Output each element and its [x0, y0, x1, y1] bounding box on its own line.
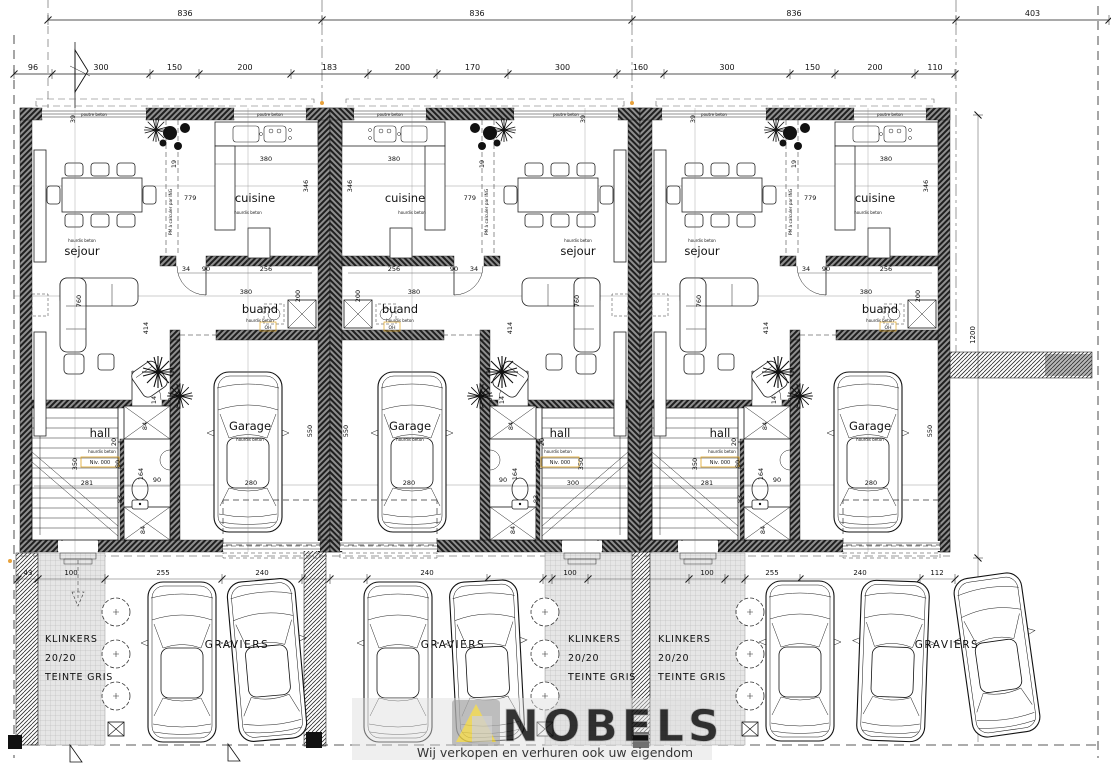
shrub — [736, 598, 764, 626]
dim-label: 80 — [734, 460, 742, 468]
dim-label: 414 — [506, 322, 514, 334]
dim-label: 550 — [306, 425, 314, 437]
dim-label: 84 — [141, 422, 149, 430]
dim-label: 84 — [509, 526, 517, 534]
graviers-label: GRAVIERS — [421, 639, 485, 651]
dim-label: 280 — [403, 479, 415, 487]
klinkers-label: KLINKERS — [568, 634, 621, 645]
dim-label: 19 — [170, 160, 178, 168]
slab-note: hourdis beton — [866, 318, 894, 323]
room-label-sejour: sejour — [560, 244, 596, 258]
slab-note: hourdis beton — [68, 238, 96, 243]
level-label: Niv. 000 — [550, 460, 570, 466]
floor-plan-drawing: 8368368364039630015020018320017030016030… — [0, 0, 1111, 768]
dim-label: 200 — [354, 290, 362, 302]
dim-label: 34 — [470, 265, 478, 273]
dim-label: 14 — [770, 396, 778, 404]
top-dim-label: 150 — [805, 63, 820, 72]
klinkers-label: 20/20 — [45, 653, 76, 664]
top-dim-label: 200 — [237, 63, 252, 72]
dim-label: 84 — [507, 422, 515, 430]
klinkers-label: TEINTE GRIS — [44, 672, 113, 683]
dim-label: 256 — [260, 265, 272, 273]
outdoor-dim-label: 100 — [64, 569, 77, 577]
slab-note: hourdis beton — [398, 210, 426, 215]
top-dim-label: 300 — [555, 63, 570, 72]
dim-label: 256 — [880, 265, 892, 273]
dim-label: 350 — [691, 458, 699, 470]
dim-label: 34 — [182, 265, 190, 273]
dim-label: 14 — [498, 396, 506, 404]
dim-label: 200 — [914, 290, 922, 302]
dim-label: 90 — [202, 265, 210, 273]
shrub — [102, 598, 130, 626]
room-label-hall: hall — [550, 426, 571, 440]
room-label-hall: hall — [710, 426, 731, 440]
beam-note: poutre beton — [81, 112, 107, 117]
dim-label: 550 — [342, 425, 350, 437]
outdoor-dim-label: 100 — [563, 569, 576, 577]
floor-plan-page: 8368368364039630015020018320017030016030… — [0, 0, 1111, 768]
level-label: Niv. 000 — [90, 460, 110, 466]
slab-note: hourdis beton — [856, 437, 884, 442]
slab-note: hourdis beton — [234, 210, 262, 215]
top-dim-label: 110 — [927, 63, 942, 72]
dim-label: 256 — [388, 265, 400, 273]
shrub — [736, 682, 764, 710]
dim-label: 83 — [116, 495, 124, 503]
hedge-strip — [304, 550, 326, 746]
dim-label: 380 — [408, 288, 420, 296]
dim-label: 39 — [689, 115, 697, 123]
dim-label: 380 — [240, 288, 252, 296]
room-label-garage: Garage — [389, 419, 431, 433]
oh-label: OH — [885, 325, 892, 331]
dim-label: 90 — [450, 265, 458, 273]
dim-label: 346 — [922, 180, 930, 192]
dim-label: 350 — [71, 458, 79, 470]
dim-label: 779 — [464, 194, 476, 202]
dim-label: 90 — [822, 265, 830, 273]
dim-label: 779 — [184, 194, 196, 202]
top-dim-label: 836 — [786, 9, 801, 18]
dim-label: 281 — [81, 479, 93, 487]
slab-note: hourdis beton — [708, 449, 736, 454]
top-dim-label: 200 — [395, 63, 410, 72]
dim-label: 550 — [926, 425, 934, 437]
dim-label: 346 — [302, 180, 310, 192]
klinkers-label: TEINTE GRIS — [657, 672, 726, 683]
dim-label: 350 — [577, 458, 585, 470]
top-dim-label: 160 — [633, 63, 648, 72]
engineer-note: PM à calculer par ING — [787, 189, 794, 235]
room-label-cuisine: cuisine — [235, 191, 275, 205]
dim-label: 20 — [730, 438, 738, 446]
dim-label: 19 — [790, 160, 798, 168]
slab-note: hourdis beton — [396, 437, 424, 442]
beam-note: poutre beton — [257, 112, 283, 117]
room-label-hall: hall — [90, 426, 111, 440]
dim-label: 83 — [532, 495, 540, 503]
dim-label: 90 — [153, 476, 161, 484]
dim-label: 34 — [802, 265, 810, 273]
dim-label: 19 — [478, 160, 486, 168]
parked-car — [849, 580, 937, 743]
dim-label: 20 — [110, 438, 118, 446]
boundary-marker — [306, 732, 322, 748]
dim-label: 164 — [137, 468, 145, 480]
room-label-cuisine: cuisine — [855, 191, 895, 205]
dim-label: 380 — [880, 155, 892, 163]
slab-note: hourdis beton — [854, 210, 882, 215]
top-dim-label: 836 — [469, 9, 484, 18]
klinkers-label: KLINKERS — [45, 634, 98, 645]
room-label-buanderie: buand — [382, 302, 418, 316]
top-dim-label: 150 — [167, 63, 182, 72]
slab-note: hourdis beton — [386, 318, 414, 323]
engineer-note: PM à calculer par ING — [483, 189, 490, 235]
dim-label: 20 — [538, 438, 546, 446]
watermark: NOBELS Wij verkopen en verhuren ook uw e… — [352, 698, 724, 760]
room-label-cuisine: cuisine — [385, 191, 425, 205]
klinkers-label: KLINKERS — [658, 634, 711, 645]
beam-note: poutre beton — [701, 112, 727, 117]
outdoor-dim-label: 100 — [700, 569, 713, 577]
dim-label: 300 — [567, 479, 579, 487]
dim-label: 90 — [499, 476, 507, 484]
dim-label: 760 — [75, 295, 83, 307]
room-label-garage: Garage — [849, 419, 891, 433]
dim-label: 380 — [260, 155, 272, 163]
top-dim-label: 96 — [28, 63, 38, 72]
room-label-buanderie: buand — [862, 302, 898, 316]
dim-label: 779 — [804, 194, 816, 202]
dim-label: 280 — [245, 479, 257, 487]
slab-note: hourdis beton — [236, 437, 264, 442]
klinkers-paving-1 — [38, 553, 105, 745]
beam-note: poutre beton — [553, 112, 579, 117]
dim-label: 80 — [534, 460, 542, 468]
slab-note: hourdis beton — [246, 318, 274, 323]
outdoor-dim-label: 240 — [420, 569, 433, 577]
watermark-tagline: Wij verkopen en verhuren ook uw eigendom — [417, 745, 693, 760]
room-label-sejour: sejour — [684, 244, 720, 258]
right-dim-label: 1200 — [969, 326, 977, 344]
slab-note: hourdis beton — [688, 238, 716, 243]
room-label-buanderie: buand — [242, 302, 278, 316]
dim-label: 281 — [701, 479, 713, 487]
klinkers-label: 20/20 — [658, 653, 689, 664]
shrub — [102, 640, 130, 668]
dim-label: 200 — [294, 290, 302, 302]
outdoor-dim-label: 255 — [765, 569, 778, 577]
outdoor-dim-label: 240 — [853, 569, 866, 577]
dim-label: 84 — [759, 526, 767, 534]
oh-label: OH — [389, 325, 396, 331]
room-label-sejour: sejour — [64, 244, 100, 258]
dim-label: 39 — [579, 115, 587, 123]
hedge-dark-end — [1045, 354, 1092, 376]
room-label-garage: Garage — [229, 419, 271, 433]
dim-label: 380 — [388, 155, 400, 163]
graviers-label: GRAVIERS — [205, 639, 269, 651]
boundary-marker — [8, 735, 22, 749]
dim-label: 39 — [69, 115, 77, 123]
dim-label: 280 — [865, 479, 877, 487]
outdoor-dim-label: 112 — [930, 569, 943, 577]
top-dim-label: 836 — [177, 9, 192, 18]
top-dim-label: 200 — [867, 63, 882, 72]
dim-label: 83 — [736, 495, 744, 503]
shrub — [102, 682, 130, 710]
graviers-label: GRAVIERS — [915, 639, 979, 651]
klinkers-label: TEINTE GRIS — [567, 672, 636, 683]
slab-note: hourdis beton — [88, 449, 116, 454]
dim-label: 164 — [757, 468, 765, 480]
shrub — [531, 640, 559, 668]
top-dim-label: 300 — [93, 63, 108, 72]
dim-label: 80 — [114, 460, 122, 468]
dim-label: 84 — [761, 422, 769, 430]
engineer-note: PM à calculer par ING — [167, 189, 174, 235]
top-dim-label: 300 — [719, 63, 734, 72]
slab-note: hourdis beton — [544, 449, 572, 454]
outdoor-dim-label: 43 — [24, 569, 33, 577]
beam-note: poutre beton — [877, 112, 903, 117]
shrub — [736, 640, 764, 668]
top-dim-label: 403 — [1025, 9, 1040, 18]
nobels-logo-icon — [452, 700, 500, 746]
dim-label: 760 — [695, 295, 703, 307]
level-label: Niv. 000 — [710, 460, 730, 466]
shrub — [531, 598, 559, 626]
oh-label: OH — [265, 325, 272, 331]
dim-label: 414 — [762, 322, 770, 334]
dim-label: 414 — [142, 322, 150, 334]
top-dim-label: 183 — [322, 63, 337, 72]
slab-note: hourdis beton — [564, 238, 592, 243]
dim-label: 84 — [139, 526, 147, 534]
outdoor-dim-label: 255 — [156, 569, 169, 577]
parked-car — [141, 582, 223, 742]
top-dim-label: 170 — [465, 63, 480, 72]
dim-label: 346 — [346, 180, 354, 192]
beam-note: poutre beton — [377, 112, 403, 117]
dim-label: 14 — [150, 396, 158, 404]
parked-car — [759, 581, 841, 741]
outdoor-dim-label: 240 — [255, 569, 268, 577]
dim-label: 380 — [860, 288, 872, 296]
dim-label: 164 — [511, 468, 519, 480]
dim-label: 760 — [573, 295, 581, 307]
dim-label: 90 — [773, 476, 781, 484]
klinkers-label: 20/20 — [568, 653, 599, 664]
